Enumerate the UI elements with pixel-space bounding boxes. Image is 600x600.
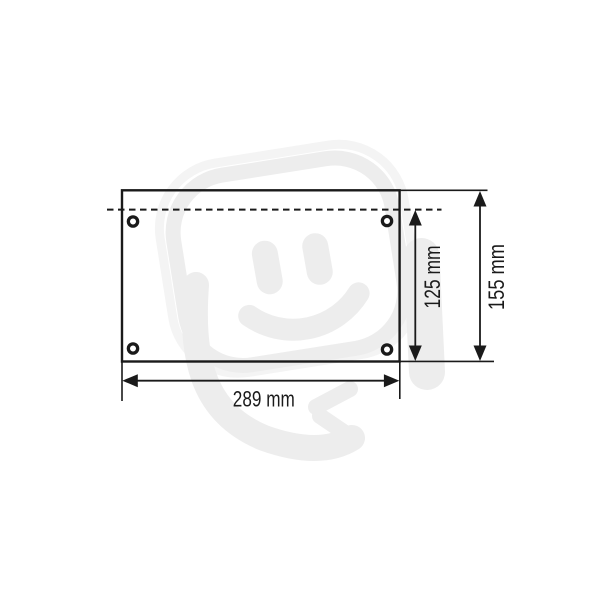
svg-text:155 mm: 155 mm — [484, 244, 509, 310]
svg-text:125 mm: 125 mm — [420, 246, 445, 309]
svg-text:289 mm: 289 mm — [233, 387, 295, 412]
